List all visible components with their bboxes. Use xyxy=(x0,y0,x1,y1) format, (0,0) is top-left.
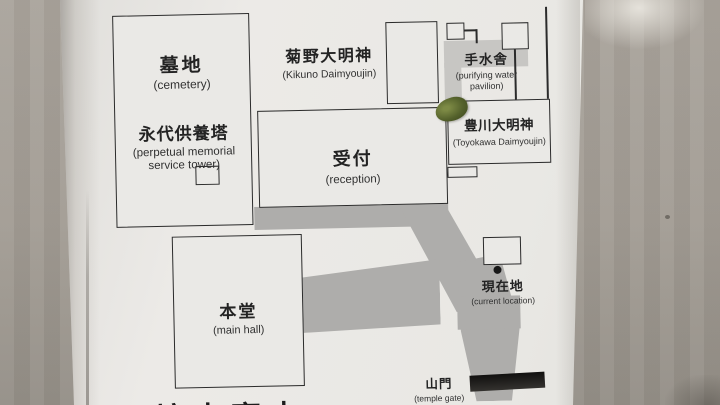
wall-speck xyxy=(665,215,670,219)
current-location-kanji: 現在地 xyxy=(454,275,552,296)
chozuya-kanji: 手水舎 xyxy=(440,47,532,69)
reception-kanji: 受付 xyxy=(258,143,448,173)
toyokawa-step-rect xyxy=(447,166,477,178)
kikuno-kanji: 菊野大明神 xyxy=(267,41,391,68)
path-mainhall-band xyxy=(301,259,440,333)
chozuya-english-2: pavilion) xyxy=(441,80,533,92)
map-right-border-line xyxy=(545,7,549,99)
kikuno-box xyxy=(385,21,439,104)
temple-gate-bar xyxy=(469,372,545,392)
sign-title-partial: 境内案内 xyxy=(154,389,415,405)
cemetery-kanji: 墓地 xyxy=(113,49,251,79)
main-hall-kanji: 本堂 xyxy=(173,296,303,324)
kikuno-label: 菊野大明神 (Kikuno Daimyoujin) xyxy=(267,41,392,82)
memorial-tower-label: 永代供養塔 (perpetual memorial service tower) xyxy=(108,118,259,174)
chozuya-label: 手水舎 (purifying water pavilion) xyxy=(440,47,533,92)
wall-dark-stain xyxy=(665,375,720,405)
current-location-label: 現在地 (current location) xyxy=(454,275,553,307)
toyokawa-label: 豊川大明神 (Toyokawa Daimyoujin) xyxy=(447,113,551,148)
chozuya-small-square xyxy=(446,23,464,40)
photo-of-temple-map-sign: 墓地 (cemetery) 永代供養塔 (perpetual memorial … xyxy=(0,0,720,405)
chozuya-large-square xyxy=(501,22,529,50)
cemetery-english: (cemetery) xyxy=(113,76,250,93)
reception-label: 受付 (reception) xyxy=(258,143,448,188)
wall-light-reflection xyxy=(585,0,705,50)
connector-line-v xyxy=(475,29,477,43)
cemetery-label: 墓地 (cemetery) xyxy=(113,49,251,93)
memorial-tower-kanji: 永代供養塔 xyxy=(108,118,258,146)
current-location-box xyxy=(483,236,522,265)
current-location-english: (current location) xyxy=(454,295,552,307)
main-hall-label: 本堂 (main hall) xyxy=(173,296,304,338)
kikuno-english: (Kikuno Daimyoujin) xyxy=(267,67,391,82)
